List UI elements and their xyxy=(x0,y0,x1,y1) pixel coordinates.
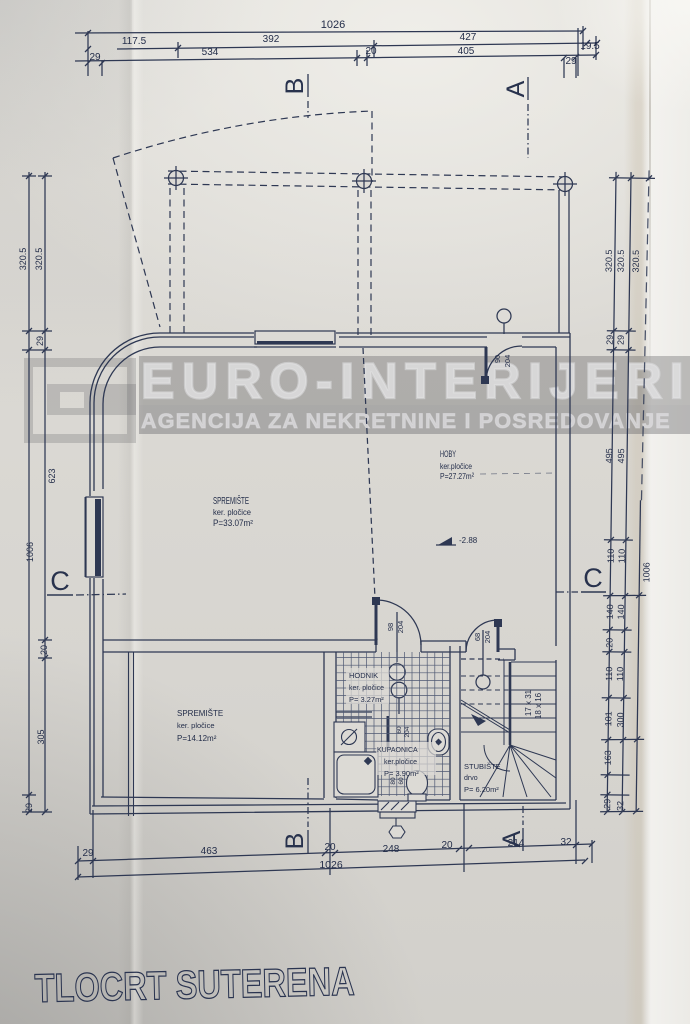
svg-text:117.5: 117.5 xyxy=(122,36,147,47)
svg-text:320.5: 320.5 xyxy=(18,248,28,271)
svg-text:60: 60 xyxy=(398,777,405,785)
svg-text:SPREMIŠTE: SPREMIŠTE xyxy=(213,494,249,507)
svg-text:405: 405 xyxy=(458,46,475,57)
svg-text:204: 204 xyxy=(396,621,405,634)
svg-text:1006: 1006 xyxy=(25,542,35,562)
svg-text:300: 300 xyxy=(615,712,625,727)
svg-text:140: 140 xyxy=(616,604,626,619)
svg-text:P=33.07m²: P=33.07m² xyxy=(213,518,253,528)
svg-text:ker. pločice: ker. pločice xyxy=(177,721,215,730)
svg-text:29: 29 xyxy=(565,56,577,67)
svg-text:32: 32 xyxy=(560,837,572,848)
svg-text:18 x 16: 18 x 16 xyxy=(534,692,543,719)
svg-text:20: 20 xyxy=(324,842,336,853)
svg-text:17 x 31: 17 x 31 xyxy=(524,689,533,716)
svg-text:EURO-INTERIJERI: EURO-INTERIJERI xyxy=(141,353,690,409)
svg-text:-2.88: -2.88 xyxy=(459,536,478,545)
svg-text:29: 29 xyxy=(605,335,615,345)
svg-text:STUBIŠTE: STUBIŠTE xyxy=(464,762,501,771)
svg-text:495: 495 xyxy=(604,448,614,463)
svg-text:SPREMIŠTE: SPREMIŠTE xyxy=(177,709,223,718)
svg-text:P= 6.20m²: P= 6.20m² xyxy=(464,785,499,794)
svg-text:29: 29 xyxy=(616,335,626,345)
svg-text:29: 29 xyxy=(24,803,34,813)
svg-text:P= 3.90m²: P= 3.90m² xyxy=(384,769,419,778)
svg-text:29: 29 xyxy=(89,52,101,63)
svg-text:204: 204 xyxy=(483,631,492,644)
svg-text:ker.pločice: ker.pločice xyxy=(440,462,472,471)
svg-text:110: 110 xyxy=(615,667,625,681)
svg-text:P=27.27m²: P=27.27m² xyxy=(440,471,474,481)
svg-text:204: 204 xyxy=(503,355,512,368)
svg-text:68: 68 xyxy=(473,633,482,641)
svg-text:B: B xyxy=(281,833,309,850)
svg-text:427: 427 xyxy=(460,32,477,43)
svg-text:C: C xyxy=(583,563,603,593)
svg-text:AGENCIJA ZA NEKRETNINE I POSRE: AGENCIJA ZA NEKRETNINE I POSREDOVANJE xyxy=(141,409,671,433)
svg-text:20: 20 xyxy=(39,645,49,655)
svg-text:101: 101 xyxy=(603,711,613,726)
svg-text:534: 534 xyxy=(202,47,219,58)
svg-text:P= 3.27m²: P= 3.27m² xyxy=(349,695,384,704)
svg-text:204: 204 xyxy=(404,726,411,737)
svg-text:C: C xyxy=(50,566,70,596)
svg-text:80: 80 xyxy=(390,777,397,785)
svg-text:392: 392 xyxy=(263,34,280,45)
svg-text:90: 90 xyxy=(493,355,502,363)
svg-text:ker. pločice: ker. pločice xyxy=(213,508,252,517)
svg-text:248: 248 xyxy=(383,844,400,855)
svg-text:drvo: drvo xyxy=(464,775,478,782)
svg-text:29: 29 xyxy=(35,336,45,346)
svg-text:20: 20 xyxy=(365,46,377,57)
svg-text:110: 110 xyxy=(604,667,614,681)
svg-text:HOBY: HOBY xyxy=(440,449,456,459)
svg-text:20: 20 xyxy=(441,840,453,851)
svg-text:110: 110 xyxy=(617,549,627,563)
svg-text:A: A xyxy=(502,80,530,97)
svg-text:P=14.12m²: P=14.12m² xyxy=(177,734,217,743)
svg-text:305: 305 xyxy=(36,729,46,744)
svg-text:1006: 1006 xyxy=(641,562,651,582)
svg-text:B: B xyxy=(281,78,309,95)
svg-text:29: 29 xyxy=(602,799,612,809)
svg-text:ker.pločice: ker.pločice xyxy=(384,759,417,766)
svg-text:A: A xyxy=(498,830,526,847)
svg-text:19.5: 19.5 xyxy=(580,41,600,52)
svg-text:98: 98 xyxy=(386,623,395,631)
svg-text:1026: 1026 xyxy=(319,859,343,871)
svg-text:495: 495 xyxy=(616,448,626,463)
svg-text:60: 60 xyxy=(396,726,403,734)
svg-text:32: 32 xyxy=(615,801,625,811)
svg-text:623: 623 xyxy=(47,468,57,483)
svg-text:320.5: 320.5 xyxy=(34,248,44,271)
svg-text:TLOCRT SUTERENA: TLOCRT SUTERENA xyxy=(34,960,355,1011)
svg-text:163: 163 xyxy=(603,750,613,765)
svg-text:ker. pločice: ker. pločice xyxy=(349,685,384,692)
svg-text:KUPAONICA: KUPAONICA xyxy=(377,747,418,754)
svg-text:29: 29 xyxy=(82,848,94,859)
svg-text:1026: 1026 xyxy=(321,19,345,31)
svg-text:140: 140 xyxy=(605,604,615,619)
svg-text:HODNIK: HODNIK xyxy=(349,671,378,680)
svg-text:320.5: 320.5 xyxy=(604,249,614,272)
svg-text:20: 20 xyxy=(604,638,614,648)
svg-text:320.5: 320.5 xyxy=(631,250,641,273)
svg-text:463: 463 xyxy=(201,846,218,857)
svg-text:320.5: 320.5 xyxy=(616,250,626,273)
svg-text:110: 110 xyxy=(606,549,616,563)
